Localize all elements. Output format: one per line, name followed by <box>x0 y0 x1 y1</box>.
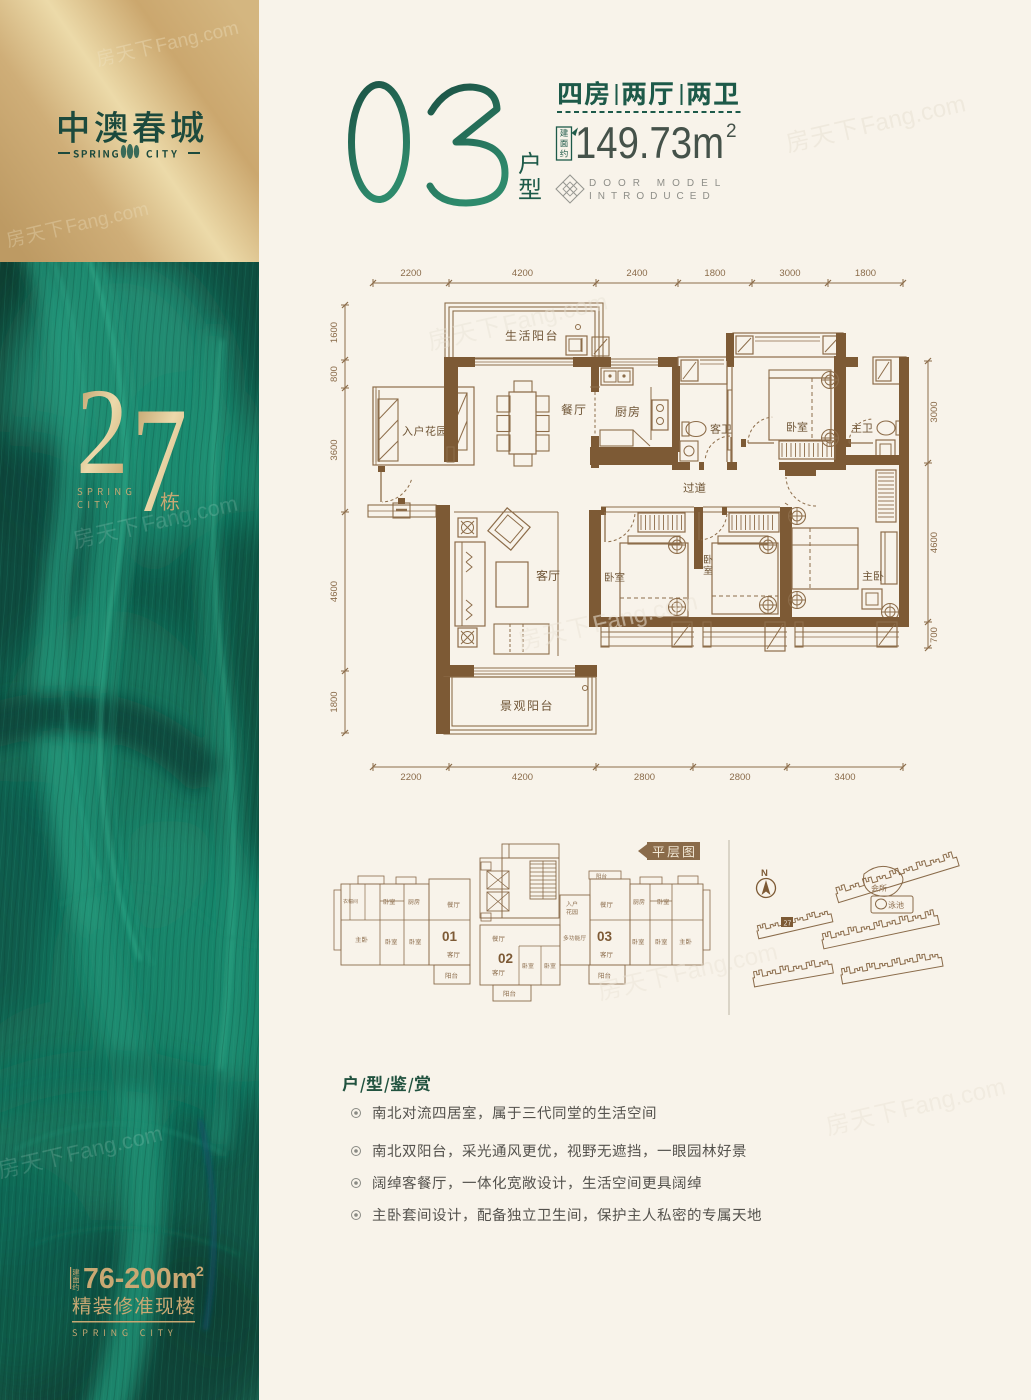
svg-text:INTRODUCED: INTRODUCED <box>589 191 716 202</box>
svg-text:4600: 4600 <box>329 581 340 602</box>
svg-text:2: 2 <box>196 1263 204 1279</box>
svg-text:3000: 3000 <box>779 268 800 279</box>
svg-text:2: 2 <box>76 362 129 500</box>
svg-text:2200: 2200 <box>400 772 421 783</box>
svg-text:2800: 2800 <box>634 772 655 783</box>
svg-text:3400: 3400 <box>834 772 855 783</box>
svg-text:76-200m: 76-200m <box>83 1263 197 1295</box>
svg-text:149.73m: 149.73m <box>575 119 724 168</box>
svg-text:1800: 1800 <box>704 268 725 279</box>
svg-text:4200: 4200 <box>512 268 533 279</box>
svg-text:4200: 4200 <box>512 772 533 783</box>
svg-text:3600: 3600 <box>329 439 340 460</box>
svg-text:2400: 2400 <box>626 268 647 279</box>
svg-text:800: 800 <box>329 366 340 382</box>
svg-text:1800: 1800 <box>855 268 876 279</box>
svg-text:DOOR MODEL: DOOR MODEL <box>589 178 727 189</box>
svg-text:01: 01 <box>442 929 458 944</box>
svg-text:700: 700 <box>929 627 940 643</box>
svg-text:N: N <box>761 868 768 879</box>
svg-text:1600: 1600 <box>329 322 340 343</box>
svg-text:4600: 4600 <box>929 532 940 553</box>
svg-text:02: 02 <box>498 951 513 966</box>
svg-text:3000: 3000 <box>929 401 940 422</box>
svg-text:2800: 2800 <box>729 772 750 783</box>
svg-text:2200: 2200 <box>400 268 421 279</box>
svg-text:03: 03 <box>597 929 613 944</box>
svg-text:1800: 1800 <box>329 691 340 712</box>
svg-text:2: 2 <box>726 121 737 142</box>
